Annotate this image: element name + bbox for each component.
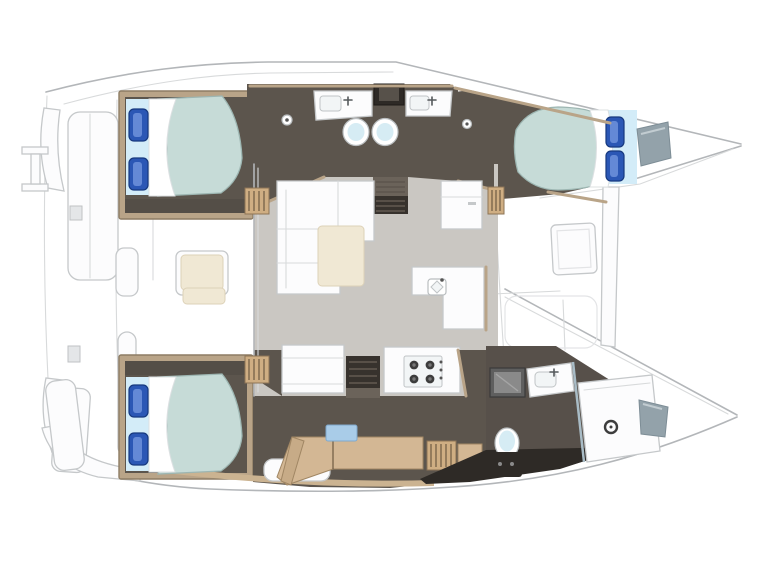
cockpit-cushion-small <box>183 288 225 304</box>
forward-crossbeam <box>601 187 619 347</box>
cockpit-bench-small <box>116 248 138 296</box>
port-bow-window <box>637 122 671 166</box>
catamaran-floorplan-stage <box>0 0 768 576</box>
cockpit-cushion <box>181 255 223 290</box>
fridge-handle <box>468 202 476 205</box>
bathroom-sink <box>535 372 556 387</box>
toilet-pedestal <box>491 452 522 477</box>
port-bow-inner-trim <box>548 192 606 202</box>
galley-faucet <box>440 278 444 282</box>
forward-companionway-steps <box>373 177 408 214</box>
vanity-sink-fwd <box>410 96 429 110</box>
foredeck-seam-2 <box>563 300 565 350</box>
deck-fitting-upper <box>70 206 82 220</box>
foredeck-hatch <box>551 223 598 275</box>
salon-chaise-cushion <box>318 226 364 286</box>
stove <box>404 356 443 387</box>
hull-companionway-steps <box>346 356 380 398</box>
salon <box>254 164 498 398</box>
transom-step-panel <box>68 112 118 280</box>
foredeck-seam-1 <box>492 291 560 294</box>
desk-blue-item <box>326 425 357 441</box>
catamaran-floorplan <box>0 0 768 576</box>
vanity-sink-aft <box>320 96 341 111</box>
deck-fitting-lower <box>68 346 80 362</box>
nav-counter <box>282 345 344 393</box>
starboard-bow-window <box>639 400 668 437</box>
